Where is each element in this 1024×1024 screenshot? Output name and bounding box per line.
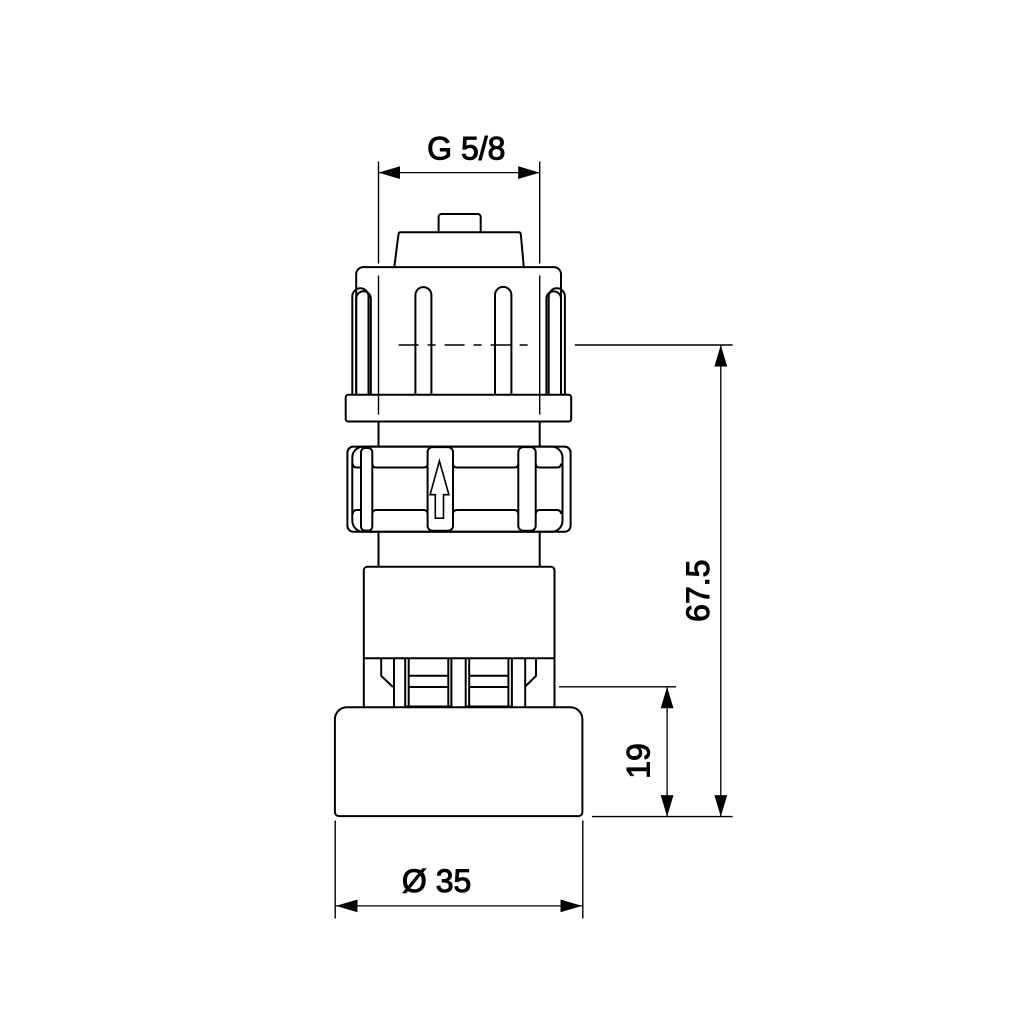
svg-text:G 5/8: G 5/8 <box>427 131 505 167</box>
svg-text:19: 19 <box>621 743 657 779</box>
svg-text:Ø 35: Ø 35 <box>402 863 471 899</box>
svg-text:67.5: 67.5 <box>680 560 716 622</box>
